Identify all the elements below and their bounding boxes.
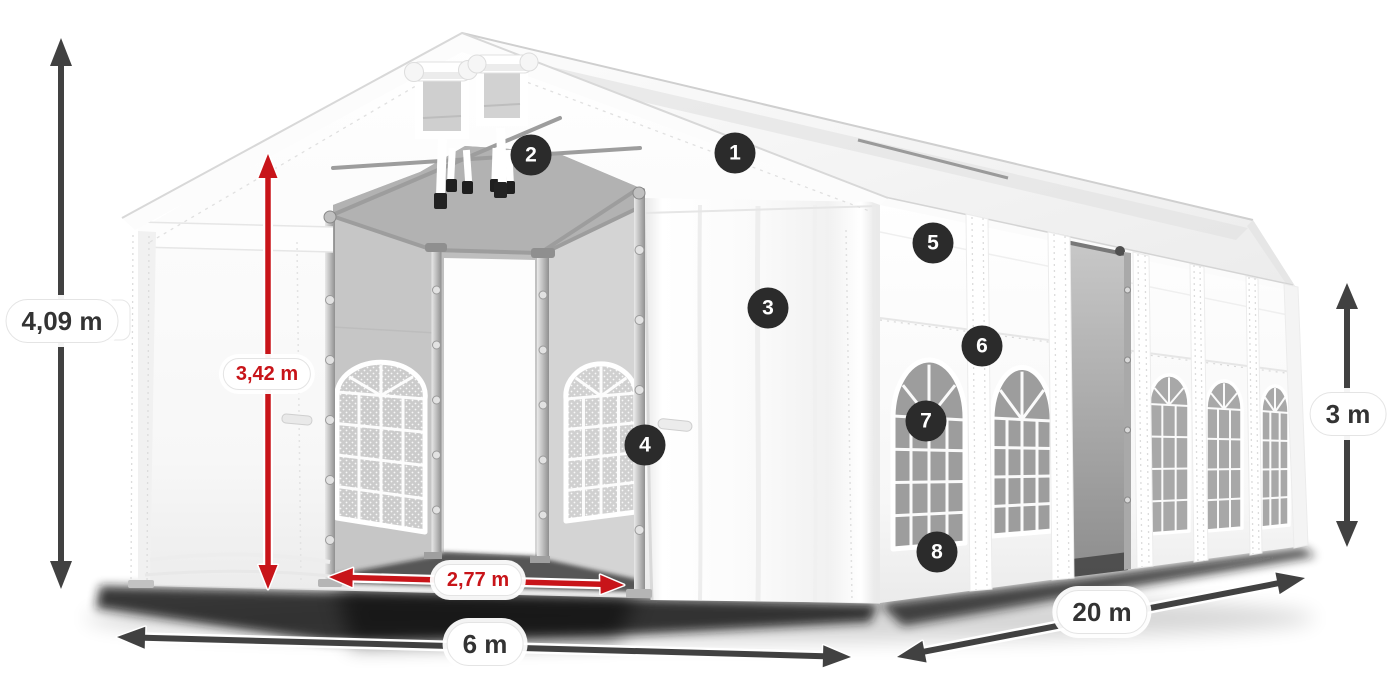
side-sliding-door-opening [1064, 240, 1131, 578]
callout-8[interactable]: 8 [917, 532, 958, 573]
vent-roller-left [405, 61, 478, 82]
callout-1[interactable]: 1 [715, 133, 756, 174]
label-total-height: 4,09 m [6, 299, 119, 343]
interior-window-left [337, 362, 425, 532]
side-window-3 [1149, 375, 1189, 534]
label-side-height: 3 m [1310, 392, 1387, 436]
rear-door-through-view [444, 258, 535, 556]
side-window-2 [992, 367, 1052, 536]
side-window-1 [893, 360, 965, 549]
callout-4[interactable]: 4 [625, 425, 666, 466]
side-window-4 [1206, 381, 1242, 531]
callout-5[interactable]: 5 [913, 223, 954, 264]
door-post-pole [1124, 252, 1131, 570]
callout-6[interactable]: 6 [962, 326, 1003, 367]
label-entrance-width: 2,77 m [434, 564, 522, 596]
tent-illustration [0, 0, 1400, 700]
vent-roller-right [468, 53, 538, 73]
callout-3[interactable]: 3 [748, 288, 789, 329]
label-width: 6 m [447, 622, 524, 666]
callout-2[interactable]: 2 [511, 135, 552, 176]
side-window-5 [1261, 386, 1289, 528]
tent-dimension-diagram: 4,09 m 3,42 m 2,77 m 6 m 20 m 3 m 1 2 3 … [0, 0, 1400, 700]
panel-tie-strap [282, 414, 313, 426]
front-door-curtain [643, 198, 880, 603]
label-length: 20 m [1056, 590, 1147, 634]
front-entrance-interior [330, 118, 640, 592]
label-inner-height: 3,42 m [223, 358, 311, 390]
callout-7[interactable]: 7 [906, 401, 947, 442]
